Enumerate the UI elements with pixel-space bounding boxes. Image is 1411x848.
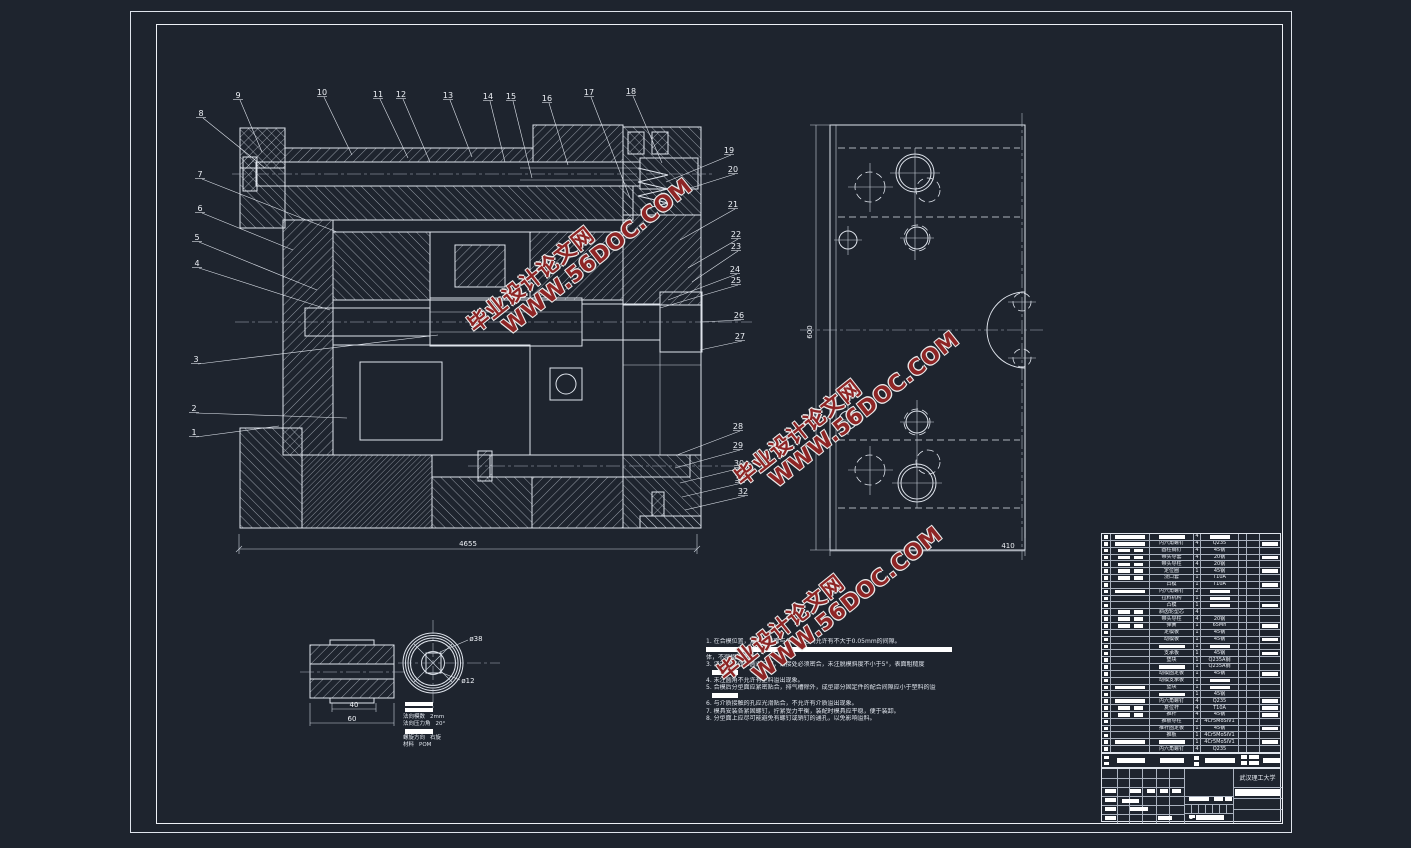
- highlighted-cell: [1159, 693, 1185, 697]
- spec-row: 材料POM: [403, 742, 481, 749]
- bom-cell: [1150, 664, 1194, 670]
- bom-cell: [1102, 602, 1111, 608]
- bom-cell: [1247, 616, 1260, 622]
- balloon-number[interactable]: 1: [191, 428, 196, 437]
- bom-cell: [1239, 609, 1247, 615]
- note-line: 8. 分型面上应尽可能避免有螺钉或销钉的通孔，以免影响溢料。: [706, 715, 954, 723]
- bom-row[interactable]: 复位杆4T10A: [1102, 705, 1280, 712]
- bom-cell: [1102, 671, 1111, 677]
- bom-cell: 45钢: [1201, 691, 1239, 697]
- bom-cell: [1260, 596, 1280, 602]
- balloon-number[interactable]: 27: [735, 332, 745, 341]
- bom-cell: [1111, 623, 1150, 629]
- bom-cell: [1247, 719, 1260, 725]
- bom-cell: 65Mn: [1201, 623, 1239, 629]
- bom-cell: [1111, 685, 1150, 691]
- bom-cell: [1247, 548, 1260, 554]
- bom-cell: 4: [1194, 561, 1201, 567]
- bom-cell: [1247, 746, 1260, 752]
- bom-cell: [1102, 691, 1111, 697]
- bom-cell: [1239, 712, 1247, 718]
- bom-row[interactable]: 带头导柱420钢: [1102, 616, 1280, 623]
- bom-cell: 4Cr5MoSiV1: [1201, 719, 1239, 725]
- bom-row[interactable]: 斜齿轮型芯4: [1102, 609, 1280, 616]
- balloon-number[interactable]: 23: [731, 242, 741, 251]
- bom-cell: [1260, 698, 1280, 704]
- bom-cell: Q235A钢: [1201, 664, 1239, 670]
- bom-cell: [1111, 602, 1150, 608]
- bom-cell: 凸模: [1150, 602, 1194, 608]
- item-number-highlight: [1104, 720, 1108, 724]
- balloon-number[interactable]: 17: [584, 88, 594, 97]
- balloon-number[interactable]: 4: [194, 259, 199, 268]
- hole-pattern-top[interactable]: [834, 148, 940, 260]
- highlighted-cell: [1160, 758, 1184, 763]
- balloon-number[interactable]: 25: [731, 276, 741, 285]
- bom-cell: 圆柱销钉: [1150, 548, 1194, 554]
- spec-label: 螺旋方向: [403, 735, 425, 741]
- highlighted-dot: [1189, 815, 1193, 819]
- bom-cell: [1111, 561, 1150, 567]
- bom-cell: [1102, 712, 1111, 718]
- item-number-highlight: [1104, 535, 1108, 539]
- bom-cell: 支承板: [1150, 650, 1194, 656]
- bom-cell: [1247, 602, 1260, 608]
- bom-cell: 4: [1194, 534, 1201, 540]
- bom-cell: 2: [1194, 589, 1201, 595]
- bom-row[interactable]: 内六角螺钉4Q235: [1102, 746, 1280, 752]
- balloon-number[interactable]: 6: [197, 204, 202, 213]
- bom-row[interactable]: 14Cr5MoSiV1: [1102, 739, 1280, 746]
- highlighted-cell: [1210, 597, 1230, 601]
- bom-cell: 1: [1194, 685, 1201, 691]
- balloon-number[interactable]: 5: [194, 233, 199, 242]
- bom-row[interactable]: 垫块1Q235A钢: [1102, 657, 1280, 664]
- highlighted-cell: [1134, 713, 1143, 717]
- bom-cell: 45钢: [1201, 637, 1239, 643]
- bom-cell: [1239, 555, 1247, 561]
- highlighted-cell: [1241, 761, 1247, 765]
- spec-value: 右旋: [430, 735, 441, 741]
- highlighted-cell: [1262, 652, 1278, 656]
- bom-cell: [1239, 705, 1247, 711]
- balloon-number[interactable]: 16: [542, 94, 552, 103]
- bom-row[interactable]: 圆柱销钉445钢: [1102, 548, 1280, 555]
- bom-cell: [1102, 657, 1111, 663]
- bom-cell: 动模固定板: [1150, 671, 1194, 677]
- bom-cell: [1247, 664, 1260, 670]
- bom-cell: [1102, 555, 1111, 561]
- bom-cell: [1111, 589, 1150, 595]
- bom-cell: [1102, 582, 1111, 588]
- bom-cell: [1247, 732, 1260, 738]
- item-number-highlight: [1104, 590, 1108, 594]
- bom-cell: [1102, 623, 1111, 629]
- bom-cell: [1260, 541, 1280, 547]
- highlighted-cell: [1262, 583, 1278, 587]
- highlighted-cell: [1105, 789, 1116, 793]
- bom-cell: [1111, 712, 1150, 718]
- bom-row[interactable]: 推杆固定板145钢: [1102, 726, 1280, 733]
- spec-highlight-bar: [405, 729, 433, 734]
- bom-cell: [1260, 678, 1280, 684]
- highlighted-cell: [1118, 549, 1130, 553]
- bom-row[interactable]: 浇口套1T10A: [1102, 575, 1280, 582]
- bom-cell: [1239, 691, 1247, 697]
- highlighted-cell: [1115, 686, 1145, 690]
- highlighted-cell: [1115, 699, 1145, 703]
- highlighted-cell: [1117, 758, 1145, 763]
- bom-cell: [1111, 719, 1150, 725]
- dim-plan-height: 600: [806, 325, 814, 338]
- bom-cell: [1247, 609, 1260, 615]
- bom-cell: [1111, 726, 1150, 732]
- balloon-number[interactable]: 19: [724, 146, 734, 155]
- highlighted-cell: [1262, 727, 1278, 731]
- bom-cell: [1201, 609, 1239, 615]
- bom-row[interactable]: 1: [1102, 644, 1280, 651]
- bom-row[interactable]: 1Q235A钢: [1102, 664, 1280, 671]
- highlighted-cell: [1134, 556, 1143, 560]
- bom-cell: 4: [1194, 746, 1201, 752]
- highlighted-cell: [1118, 706, 1130, 710]
- highlighted-cell: [1214, 797, 1223, 801]
- highlighted-cell: [1194, 762, 1199, 766]
- bom-cell: [1239, 664, 1247, 670]
- bom-cell: [1247, 691, 1260, 697]
- bom-cell: [1111, 732, 1150, 738]
- bom-cell: [1247, 575, 1260, 581]
- highlighted-cell: [1134, 569, 1143, 573]
- title-block[interactable]: 武汉理工大学: [1101, 768, 1281, 822]
- note-highlight-bar: [712, 693, 738, 698]
- item-number-highlight: [1104, 631, 1108, 635]
- item-number-highlight: [1104, 734, 1108, 738]
- bom-header-row[interactable]: [1101, 753, 1281, 768]
- highlighted-cell: [1262, 638, 1278, 642]
- balloon-number[interactable]: 21: [728, 200, 738, 209]
- highlighted-cell: [1104, 756, 1109, 759]
- bom-cell: [1102, 534, 1111, 540]
- bom-cell: [1239, 698, 1247, 704]
- bom-cell: [1201, 602, 1239, 608]
- bom-cell: [1247, 739, 1260, 745]
- bom-cell: [1102, 719, 1111, 725]
- balloon-number[interactable]: 20: [728, 165, 738, 174]
- bom-cell: [1260, 664, 1280, 670]
- balloon-number[interactable]: 29: [733, 441, 743, 450]
- dim-main-width: 4655: [459, 540, 477, 548]
- highlighted-cell: [1115, 740, 1145, 744]
- highlighted-cell: [1262, 542, 1278, 546]
- spec-row: 法向压力角20°: [403, 721, 481, 728]
- balloon-number[interactable]: 26: [734, 311, 744, 320]
- bom-table[interactable]: 4内六角螺钉4Q235圆柱销钉445钢带头导套420钢带头导柱420钢定位圈14…: [1101, 533, 1281, 753]
- highlighted-cell: [1249, 755, 1259, 759]
- highlighted-cell: [1115, 590, 1145, 594]
- bom-cell: [1239, 575, 1247, 581]
- dim-gear-outer: ø38: [469, 635, 482, 643]
- item-number-highlight: [1104, 583, 1108, 587]
- bom-cell: [1260, 746, 1280, 752]
- bom-cell: 带头导柱: [1150, 561, 1194, 567]
- bom-row[interactable]: 凸模1T10A: [1102, 582, 1280, 589]
- bom-cell: [1247, 555, 1260, 561]
- highlighted-cell: [1196, 815, 1224, 820]
- bom-cell: 1: [1194, 602, 1201, 608]
- bom-row[interactable]: 拉料机构1: [1102, 596, 1280, 603]
- dim-detail-outer: 60: [348, 715, 357, 723]
- highlighted-cell: [1118, 610, 1130, 614]
- balloon-leader: [513, 101, 532, 178]
- balloon-number[interactable]: 11: [373, 90, 383, 99]
- bom-cell: [1247, 712, 1260, 718]
- highlighted-cell: [1189, 797, 1209, 801]
- balloon-number[interactable]: 7: [197, 170, 202, 179]
- dim-detail-inner: 40: [350, 701, 359, 709]
- bom-cell: [1247, 644, 1260, 650]
- bom-row[interactable]: 推杆445钢: [1102, 712, 1280, 719]
- item-number-highlight: [1104, 747, 1108, 751]
- bom-row[interactable]: 4: [1102, 534, 1280, 541]
- bom-cell: 45钢: [1201, 548, 1239, 554]
- highlighted-cell: [1263, 758, 1280, 763]
- balloon-number[interactable]: 28: [733, 422, 743, 431]
- bom-cell: 4: [1194, 541, 1201, 547]
- bom-cell: [1239, 650, 1247, 656]
- highlighted-cell: [1241, 755, 1247, 759]
- bom-cell: [1260, 691, 1280, 697]
- highlighted-cell: [1105, 807, 1116, 811]
- bom-cell: [1102, 664, 1111, 670]
- bom-cell: [1102, 644, 1111, 650]
- bom-cell: Q235: [1201, 746, 1239, 752]
- bom-row[interactable]: 凸模1: [1102, 602, 1280, 609]
- highlighted-cell: [1262, 740, 1278, 744]
- bom-cell: [1111, 644, 1150, 650]
- bom-cell: 1: [1194, 664, 1201, 670]
- highlighted-cell: [1210, 590, 1230, 594]
- bom-cell: [1239, 616, 1247, 622]
- bom-cell: [1201, 644, 1239, 650]
- bom-cell: [1102, 575, 1111, 581]
- bom-cell: [1239, 561, 1247, 567]
- bom-cell: [1102, 650, 1111, 656]
- balloon-number[interactable]: 10: [317, 88, 327, 97]
- balloon-number[interactable]: 13: [443, 91, 453, 100]
- bom-cell: [1247, 630, 1260, 636]
- bom-row[interactable]: 带头导套420钢: [1102, 555, 1280, 562]
- bom-cell: [1102, 637, 1111, 643]
- highlighted-cell: [1134, 549, 1143, 553]
- bom-cell: [1260, 548, 1280, 554]
- bom-cell: [1260, 561, 1280, 567]
- bom-cell: [1111, 555, 1150, 561]
- bom-cell: [1260, 637, 1280, 643]
- bom-cell: 1: [1194, 568, 1201, 574]
- bom-cell: [1260, 602, 1280, 608]
- balloon-number[interactable]: 22: [731, 230, 741, 239]
- bom-cell: 45钢: [1201, 671, 1239, 677]
- item-number-highlight: [1104, 556, 1108, 560]
- bom-row[interactable]: 推板14Cr5MoSiV1: [1102, 732, 1280, 739]
- bom-cell: [1260, 582, 1280, 588]
- highlighted-cell: [1262, 624, 1278, 628]
- bom-row[interactable]: 带头导柱420钢: [1102, 561, 1280, 568]
- bom-cell: 20钢: [1201, 561, 1239, 567]
- bom-cell: 内六角螺钉: [1150, 746, 1194, 752]
- gear-side-section-view[interactable]: 40 60: [295, 625, 410, 737]
- bom-cell: T10A: [1201, 575, 1239, 581]
- balloon-number[interactable]: 12: [396, 90, 406, 99]
- balloon-number[interactable]: 15: [506, 92, 516, 101]
- bom-row[interactable]: 动模板145钢: [1102, 637, 1280, 644]
- bom-cell: 20钢: [1201, 616, 1239, 622]
- bom-cell: [1260, 630, 1280, 636]
- highlighted-cell: [1147, 789, 1155, 793]
- item-number-highlight: [1104, 624, 1108, 628]
- highlighted-cell: [1262, 569, 1278, 573]
- bom-row[interactable]: 支承板145钢: [1102, 650, 1280, 657]
- bom-cell: 45钢: [1201, 712, 1239, 718]
- bom-cell: [1239, 534, 1247, 540]
- bom-cell: [1260, 650, 1280, 656]
- bom-cell: [1247, 650, 1260, 656]
- dim-gear-bore: ø12: [461, 677, 474, 685]
- bom-cell: [1239, 671, 1247, 677]
- bom-cell: 1: [1194, 657, 1201, 663]
- bom-row[interactable]: 动模固定板145钢: [1102, 671, 1280, 678]
- bom-row[interactable]: 弹簧165Mn: [1102, 623, 1280, 630]
- bom-cell: 1: [1194, 623, 1201, 629]
- highlighted-cell: [1262, 713, 1278, 717]
- bom-cell: 定位圈: [1150, 568, 1194, 574]
- bom-cell: 推板: [1150, 732, 1194, 738]
- bom-cell: 定模板: [1150, 630, 1194, 636]
- item-number-highlight: [1104, 638, 1108, 642]
- bom-cell: [1260, 534, 1280, 540]
- bom-cell: [1239, 678, 1247, 684]
- bom-cell: [1102, 609, 1111, 615]
- bom-cell: T10A: [1201, 582, 1239, 588]
- highlighted-cell: [1130, 807, 1148, 811]
- bom-cell: [1102, 705, 1111, 711]
- item-number-highlight: [1104, 652, 1108, 656]
- bom-cell: [1111, 671, 1150, 677]
- bom-cell: [1102, 596, 1111, 602]
- bom-row[interactable]: 定位圈145钢: [1102, 568, 1280, 575]
- bom-row[interactable]: 推板导柱24Cr5MoSiV1: [1102, 719, 1280, 726]
- item-number-highlight: [1104, 597, 1108, 601]
- highlighted-cell: [1159, 740, 1185, 744]
- bom-cell: 1: [1194, 630, 1201, 636]
- bom-cell: 1: [1194, 582, 1201, 588]
- bom-cell: [1150, 534, 1194, 540]
- bom-cell: 1: [1194, 637, 1201, 643]
- bom-cell: [1260, 685, 1280, 691]
- balloon-number[interactable]: 3: [193, 355, 198, 364]
- bom-cell: [1111, 630, 1150, 636]
- balloon-number[interactable]: 24: [730, 265, 740, 274]
- bom-cell: [1247, 596, 1260, 602]
- bom-cell: [1111, 582, 1150, 588]
- bom-cell: [1111, 616, 1150, 622]
- spec-value: POM: [419, 742, 431, 748]
- bom-cell: [1111, 609, 1150, 615]
- bom-cell: 垫块: [1150, 657, 1194, 663]
- bom-cell: [1260, 732, 1280, 738]
- balloon-number[interactable]: 2: [191, 404, 196, 413]
- bom-cell: 内六角螺钉: [1150, 698, 1194, 704]
- highlighted-cell: [1118, 713, 1130, 717]
- balloon-number[interactable]: 14: [483, 92, 493, 101]
- highlighted-cell: [1262, 672, 1278, 676]
- bom-cell: 1: [1194, 596, 1201, 602]
- note-line: 7. 模具安装各紧固螺钉，拧紧受力平衡，装配时模具应平稳，便于装卸。: [706, 708, 954, 716]
- bom-row[interactable]: 动模支承板1: [1102, 678, 1280, 685]
- balloon-number[interactable]: 8: [198, 109, 203, 118]
- item-number-highlight: [1104, 604, 1108, 608]
- spec-label: 法向压力角: [403, 721, 431, 727]
- highlighted-cell: [1134, 706, 1143, 710]
- bom-cell: 1: [1194, 650, 1201, 656]
- bom-cell: [1102, 561, 1111, 567]
- cad-drawing-viewport: { "watermark": { "line1": "毕业设计论文网", "li…: [0, 0, 1411, 848]
- bom-cell: [1239, 548, 1247, 554]
- bom-row[interactable]: 145钢: [1102, 691, 1280, 698]
- highlighted-cell: [1160, 789, 1168, 793]
- bom-cell: [1247, 541, 1260, 547]
- bom-cell: 1: [1194, 644, 1201, 650]
- plan-height-dimension: 600: [806, 125, 832, 550]
- bom-cell: [1247, 726, 1260, 732]
- bom-row[interactable]: 内六角螺钉4Q235: [1102, 541, 1280, 548]
- bom-cell: [1102, 541, 1111, 547]
- bom-cell: [1150, 644, 1194, 650]
- bom-cell: [1102, 726, 1111, 732]
- bom-cell: 1: [1194, 732, 1201, 738]
- balloon-number[interactable]: 18: [626, 87, 636, 96]
- bom-cell: 1: [1194, 575, 1201, 581]
- highlighted-cell: [1249, 761, 1259, 765]
- item-number-highlight: [1104, 679, 1108, 683]
- bom-cell: [1111, 705, 1150, 711]
- bom-cell: [1102, 732, 1111, 738]
- bom-row[interactable]: 定模板145钢: [1102, 630, 1280, 637]
- item-number-highlight: [1104, 542, 1108, 546]
- bom-cell: [1150, 739, 1194, 745]
- item-number-highlight: [1104, 727, 1108, 731]
- bom-cell: 4Cr5MoSiV1: [1201, 739, 1239, 745]
- spec-highlight-bar: [405, 708, 433, 713]
- detail-dimensions: 40 60: [310, 701, 394, 726]
- bom-cell: 20钢: [1201, 555, 1239, 561]
- spec-value: 20°: [436, 721, 446, 727]
- highlighted-cell: [1105, 798, 1116, 802]
- bom-cell: [1102, 685, 1111, 691]
- bom-cell: [1239, 623, 1247, 629]
- bom-row[interactable]: 垫块1: [1102, 685, 1280, 692]
- bom-row[interactable]: 内六角螺钉2: [1102, 589, 1280, 596]
- bom-cell: [1111, 650, 1150, 656]
- bom-cell: [1239, 726, 1247, 732]
- balloon-number[interactable]: 9: [235, 91, 240, 100]
- bom-cell: [1201, 596, 1239, 602]
- bom-row[interactable]: 内六角螺钉4Q235: [1102, 698, 1280, 705]
- bom-cell: [1260, 568, 1280, 574]
- bom-cell: [1201, 589, 1239, 595]
- bom-cell: 4: [1194, 712, 1201, 718]
